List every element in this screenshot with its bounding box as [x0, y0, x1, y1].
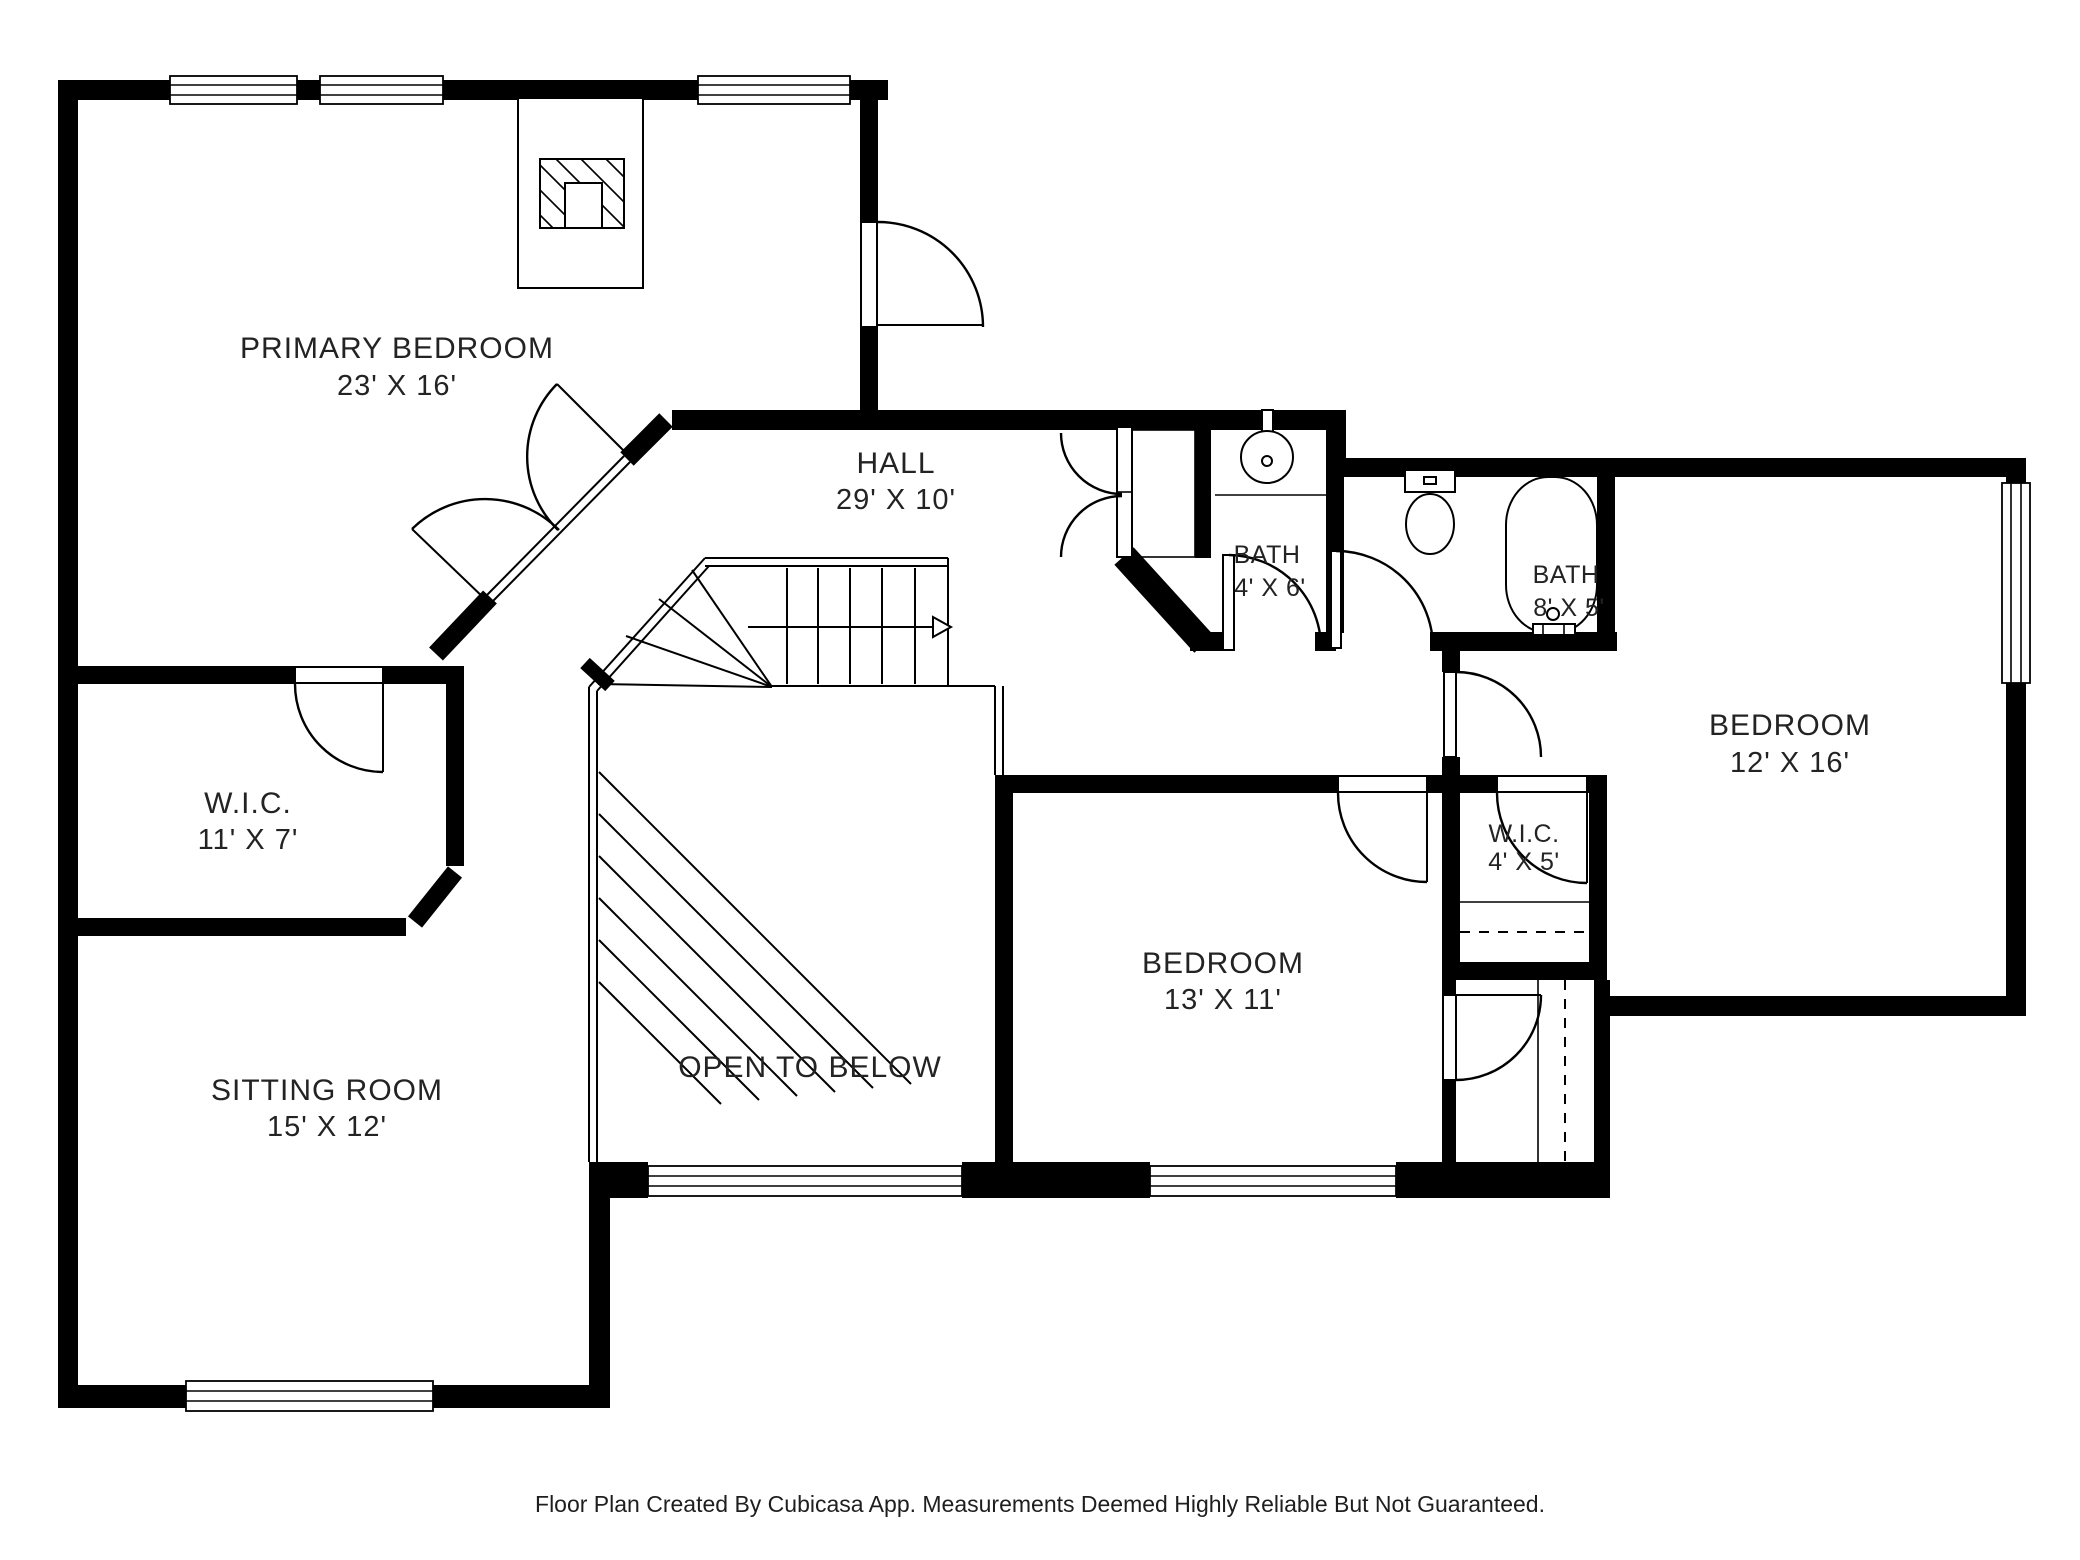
- wall-sitting-right: [589, 1162, 610, 1408]
- wall-bath-bedroom-divider: [1597, 477, 1615, 651]
- fireplace-icon: [518, 98, 643, 288]
- window-top-3: [698, 76, 850, 104]
- wall-wic11-bottom: [58, 918, 406, 936]
- wall-left: [58, 80, 78, 1408]
- wall-wic11-top-a: [58, 666, 295, 684]
- dims-hall: 29' X 10': [836, 484, 956, 516]
- wall-sitting-bottom-b: [433, 1385, 610, 1408]
- wall-bottom-band-b: [962, 1162, 1150, 1198]
- walls: [58, 80, 2026, 1408]
- floor-plan-svg: PRIMARY BEDROOM 23' X 16' HALL 29' X 10'…: [0, 0, 2080, 1560]
- door-bedroom13: [1338, 776, 1427, 882]
- wall-wic4-top-a: [1442, 775, 1497, 793]
- wall-hall-diagonal: [1124, 556, 1204, 644]
- label-bedroom12: BEDROOM: [1709, 709, 1871, 742]
- wall-wic11-chamfer: [415, 872, 455, 922]
- door-bedroom12: [1444, 672, 1541, 757]
- dims-wic4: 4' X 5': [1488, 848, 1559, 876]
- fixtures: [518, 98, 1597, 635]
- wall-bedroom12-right-lower: [2006, 681, 2026, 1016]
- label-wic11: W.I.C.: [204, 787, 292, 820]
- dims-bath-large: 8' X 5': [1533, 594, 1604, 622]
- dims-bath-small: 4' X 6': [1234, 574, 1305, 602]
- dims-primary-bedroom: 23' X 16': [337, 370, 457, 402]
- wall-wic11-top-b: [383, 666, 450, 684]
- wall-closet-right: [1594, 980, 1610, 1170]
- toilet-icon: [1405, 470, 1455, 554]
- label-open-below: OPEN TO BELOW: [678, 1051, 942, 1084]
- door-linen-double: [1061, 427, 1132, 557]
- label-bedroom13: BEDROOM: [1142, 947, 1304, 980]
- label-bath-small: BATH: [1234, 541, 1301, 569]
- wall-diagonal-upper: [627, 420, 666, 459]
- wall-wic4-bottom: [1442, 962, 1607, 980]
- wall-bedroom12-door-stub-top: [1442, 651, 1460, 672]
- wall-closet-left-b: [1442, 1080, 1456, 1170]
- wall-wic4-left: [1442, 793, 1460, 980]
- dims-bedroom13: 13' X 11': [1164, 984, 1282, 1016]
- door-primary-bedroom: [861, 222, 983, 327]
- door-bath-large: [1331, 551, 1433, 648]
- wall-sitting-bottom-a: [58, 1385, 186, 1408]
- dims-bedroom12: 12' X 16': [1730, 747, 1850, 779]
- door-bath-small: [1223, 555, 1321, 650]
- dims-wic11: 11' X 7': [198, 824, 299, 856]
- label-sitting-room: SITTING ROOM: [211, 1074, 443, 1107]
- window-sitting: [186, 1381, 433, 1411]
- wall-wic4-right: [1589, 793, 1607, 980]
- wall-bedroom12-door-stub-bottom: [1442, 757, 1460, 775]
- door-primary-double: [412, 384, 630, 601]
- wall-bedroom12-right-upper: [2006, 458, 2026, 485]
- window-top-2: [320, 76, 443, 104]
- wall-linen-right: [1195, 427, 1211, 558]
- wall-bedroom12-bottom: [1607, 996, 2026, 1016]
- footer-disclaimer: Floor Plan Created By Cubicasa App. Meas…: [535, 1491, 1545, 1517]
- linen-closet-outline: [1132, 430, 1195, 557]
- door-closet: [1443, 995, 1541, 1080]
- wall-corridor-bottom-a: [995, 775, 1338, 793]
- label-hall: HALL: [856, 447, 935, 480]
- wall-bath-bottom-c: [1430, 632, 1617, 651]
- label-wic4: W.I.C.: [1488, 820, 1559, 848]
- window-open-below: [648, 1166, 962, 1196]
- wall-diagonal-lower: [436, 597, 490, 654]
- wall-primary-right-upper: [860, 80, 878, 222]
- wall-closet-left-a: [1442, 980, 1456, 995]
- window-bedroom13: [1150, 1166, 1396, 1196]
- door-wic11: [295, 667, 383, 772]
- wall-wic11-right: [446, 666, 464, 866]
- dims-sitting-room: 15' X 12': [267, 1111, 387, 1143]
- wall-bottom-band-c: [1396, 1162, 1610, 1198]
- label-primary-bedroom: PRIMARY BEDROOM: [240, 332, 554, 365]
- window-top-1: [170, 76, 297, 104]
- label-bath-large: BATH: [1533, 561, 1600, 589]
- window-bedroom12-right: [2002, 483, 2030, 683]
- wall-wic4-top-b: [1587, 775, 1607, 793]
- floor-plan-page: PRIMARY BEDROOM 23' X 16' HALL 29' X 10'…: [0, 0, 2080, 1560]
- wall-bedroom13-left: [995, 775, 1013, 1170]
- wall-hall-top: [672, 410, 1346, 430]
